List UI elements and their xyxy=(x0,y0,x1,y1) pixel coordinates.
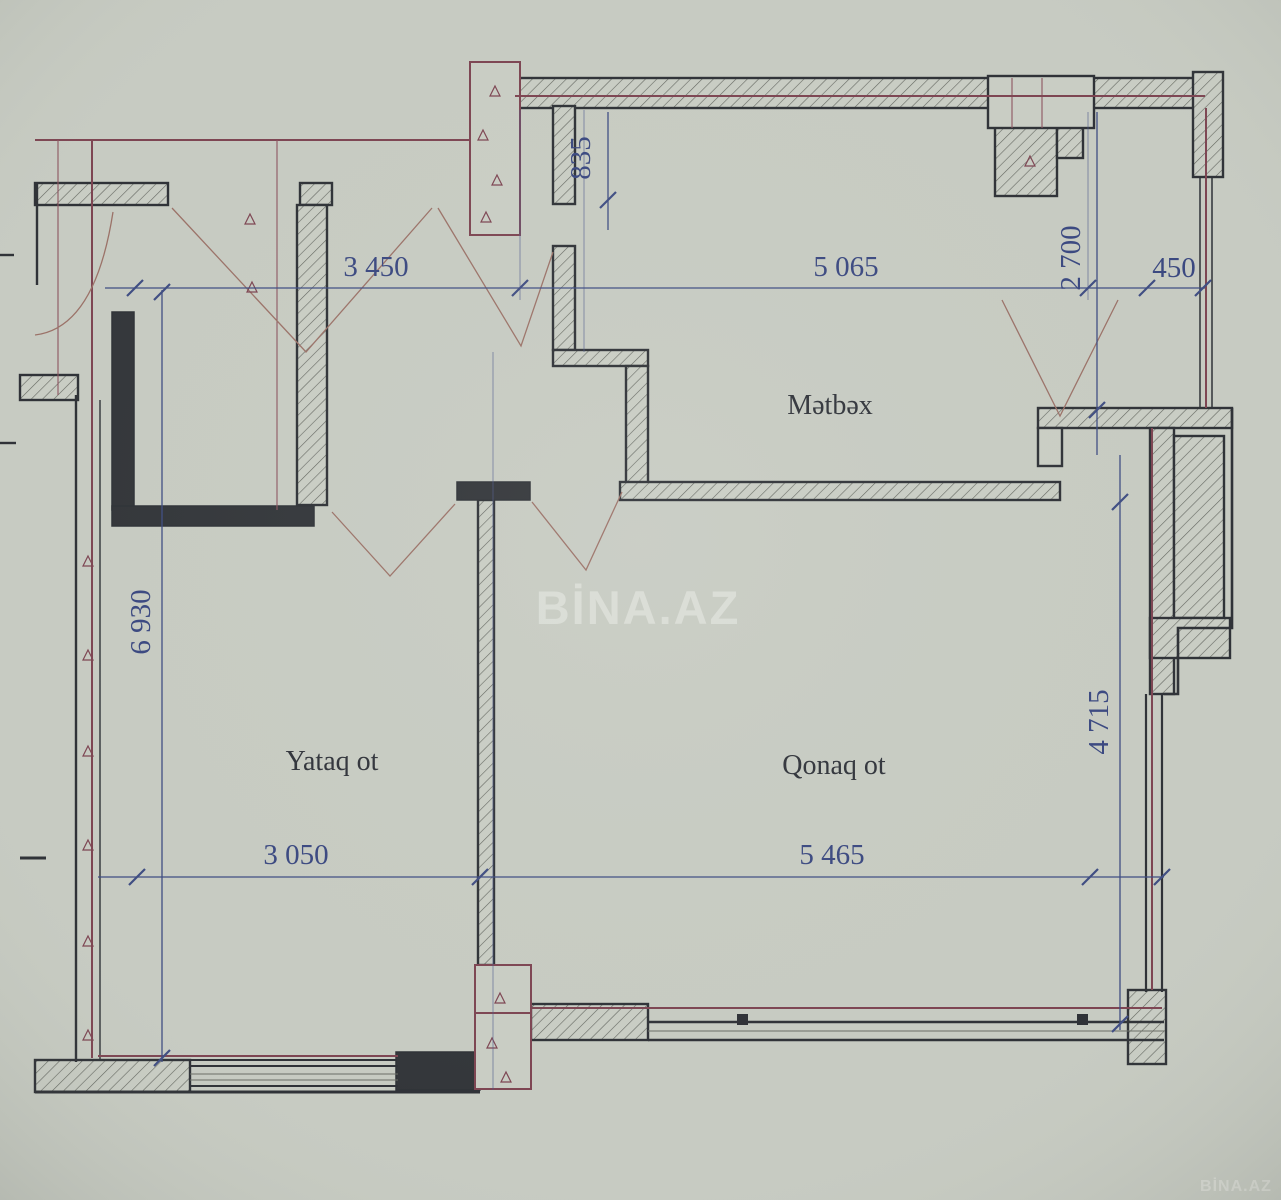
floor-plan-drawing: 3 450 5 065 450 835 2 700 6 930 4 715 3 … xyxy=(0,0,1281,1200)
photo-vignette xyxy=(0,0,1281,1200)
floorplan-photo: 3 450 5 065 450 835 2 700 6 930 4 715 3 … xyxy=(0,0,1281,1200)
